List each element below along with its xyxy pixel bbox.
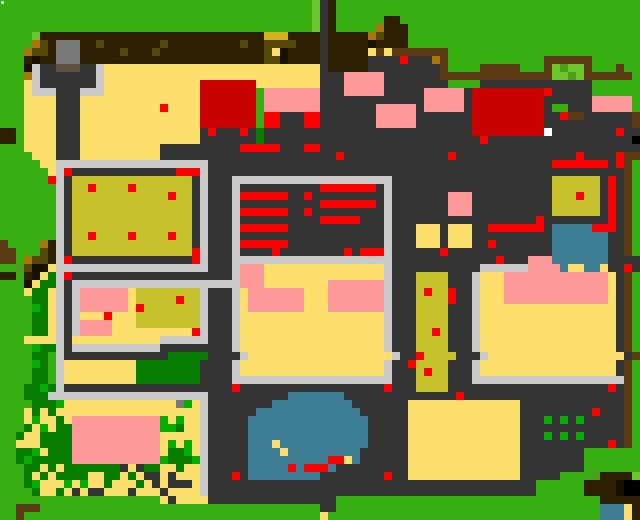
game-world-map[interactable] xyxy=(0,0,640,520)
game-viewport xyxy=(0,0,640,520)
